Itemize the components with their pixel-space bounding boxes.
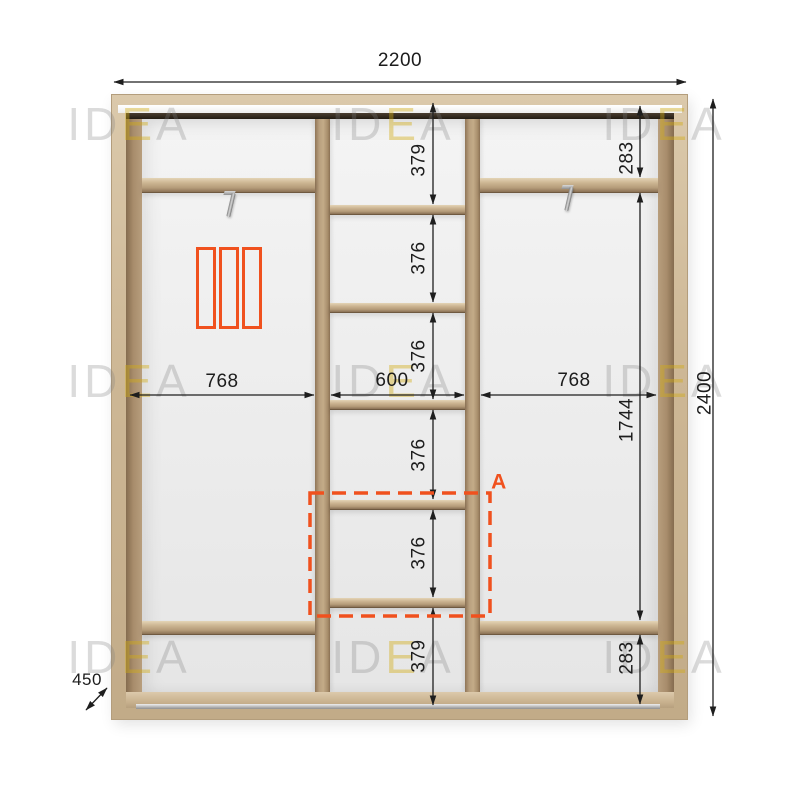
top-door-rail (118, 105, 682, 113)
dimension-total-height-label: 2400 (696, 371, 715, 415)
detail-area-label: A (491, 472, 507, 493)
dimension-shelf-gap-3: 376 (410, 339, 429, 372)
middle-shelf-5 (330, 598, 465, 608)
dimension-shelf-gap-2: 376 (410, 241, 429, 274)
right-side-panel (658, 106, 674, 708)
bottom-door-rail (136, 704, 660, 709)
hanger-bracket-icon (559, 185, 577, 213)
middle-shelf-3 (330, 400, 465, 410)
top-track (126, 113, 674, 119)
door-leaf-icon (219, 247, 239, 329)
sliding-door-icon (196, 247, 262, 329)
dimension-right-top-gap: 283 (618, 141, 637, 174)
dimension-depth-label: 450 (72, 671, 102, 688)
door-leaf-icon (196, 247, 216, 329)
hanger-bracket-icon (221, 191, 239, 219)
left-side-panel (126, 106, 142, 708)
partition-left (315, 119, 330, 692)
wardrobe-technical-drawing: IDEA IDEA IDEA IDEA IDEA IDEA IDEA IDEA … (0, 0, 800, 800)
dimension-left-section-label: 768 (205, 372, 238, 391)
dimension-right-middle-gap: 1744 (618, 398, 637, 442)
partition-right (465, 119, 480, 692)
middle-shelf-2 (330, 303, 465, 313)
middle-shelf-4 (330, 500, 465, 510)
dimension-shelf-gap-1: 379 (410, 143, 429, 176)
middle-shelf-1 (330, 205, 465, 215)
dimension-right-bottom-gap: 283 (618, 641, 637, 674)
dimension-middle-section-label: 600 (375, 371, 408, 390)
left-bottom-shelf (142, 621, 315, 635)
door-leaf-icon (242, 247, 262, 329)
watermark-text: A (691, 97, 726, 151)
right-bottom-shelf (480, 621, 658, 635)
dimension-shelf-gap-5: 376 (410, 536, 429, 569)
dimension-depth (86, 688, 107, 710)
dimension-right-section-label: 768 (557, 371, 590, 390)
dimension-shelf-gap-6: 379 (410, 639, 429, 672)
dimension-shelf-gap-4: 376 (410, 438, 429, 471)
watermark-text: A (691, 630, 726, 684)
dimension-total-width-label: 2200 (378, 51, 422, 70)
